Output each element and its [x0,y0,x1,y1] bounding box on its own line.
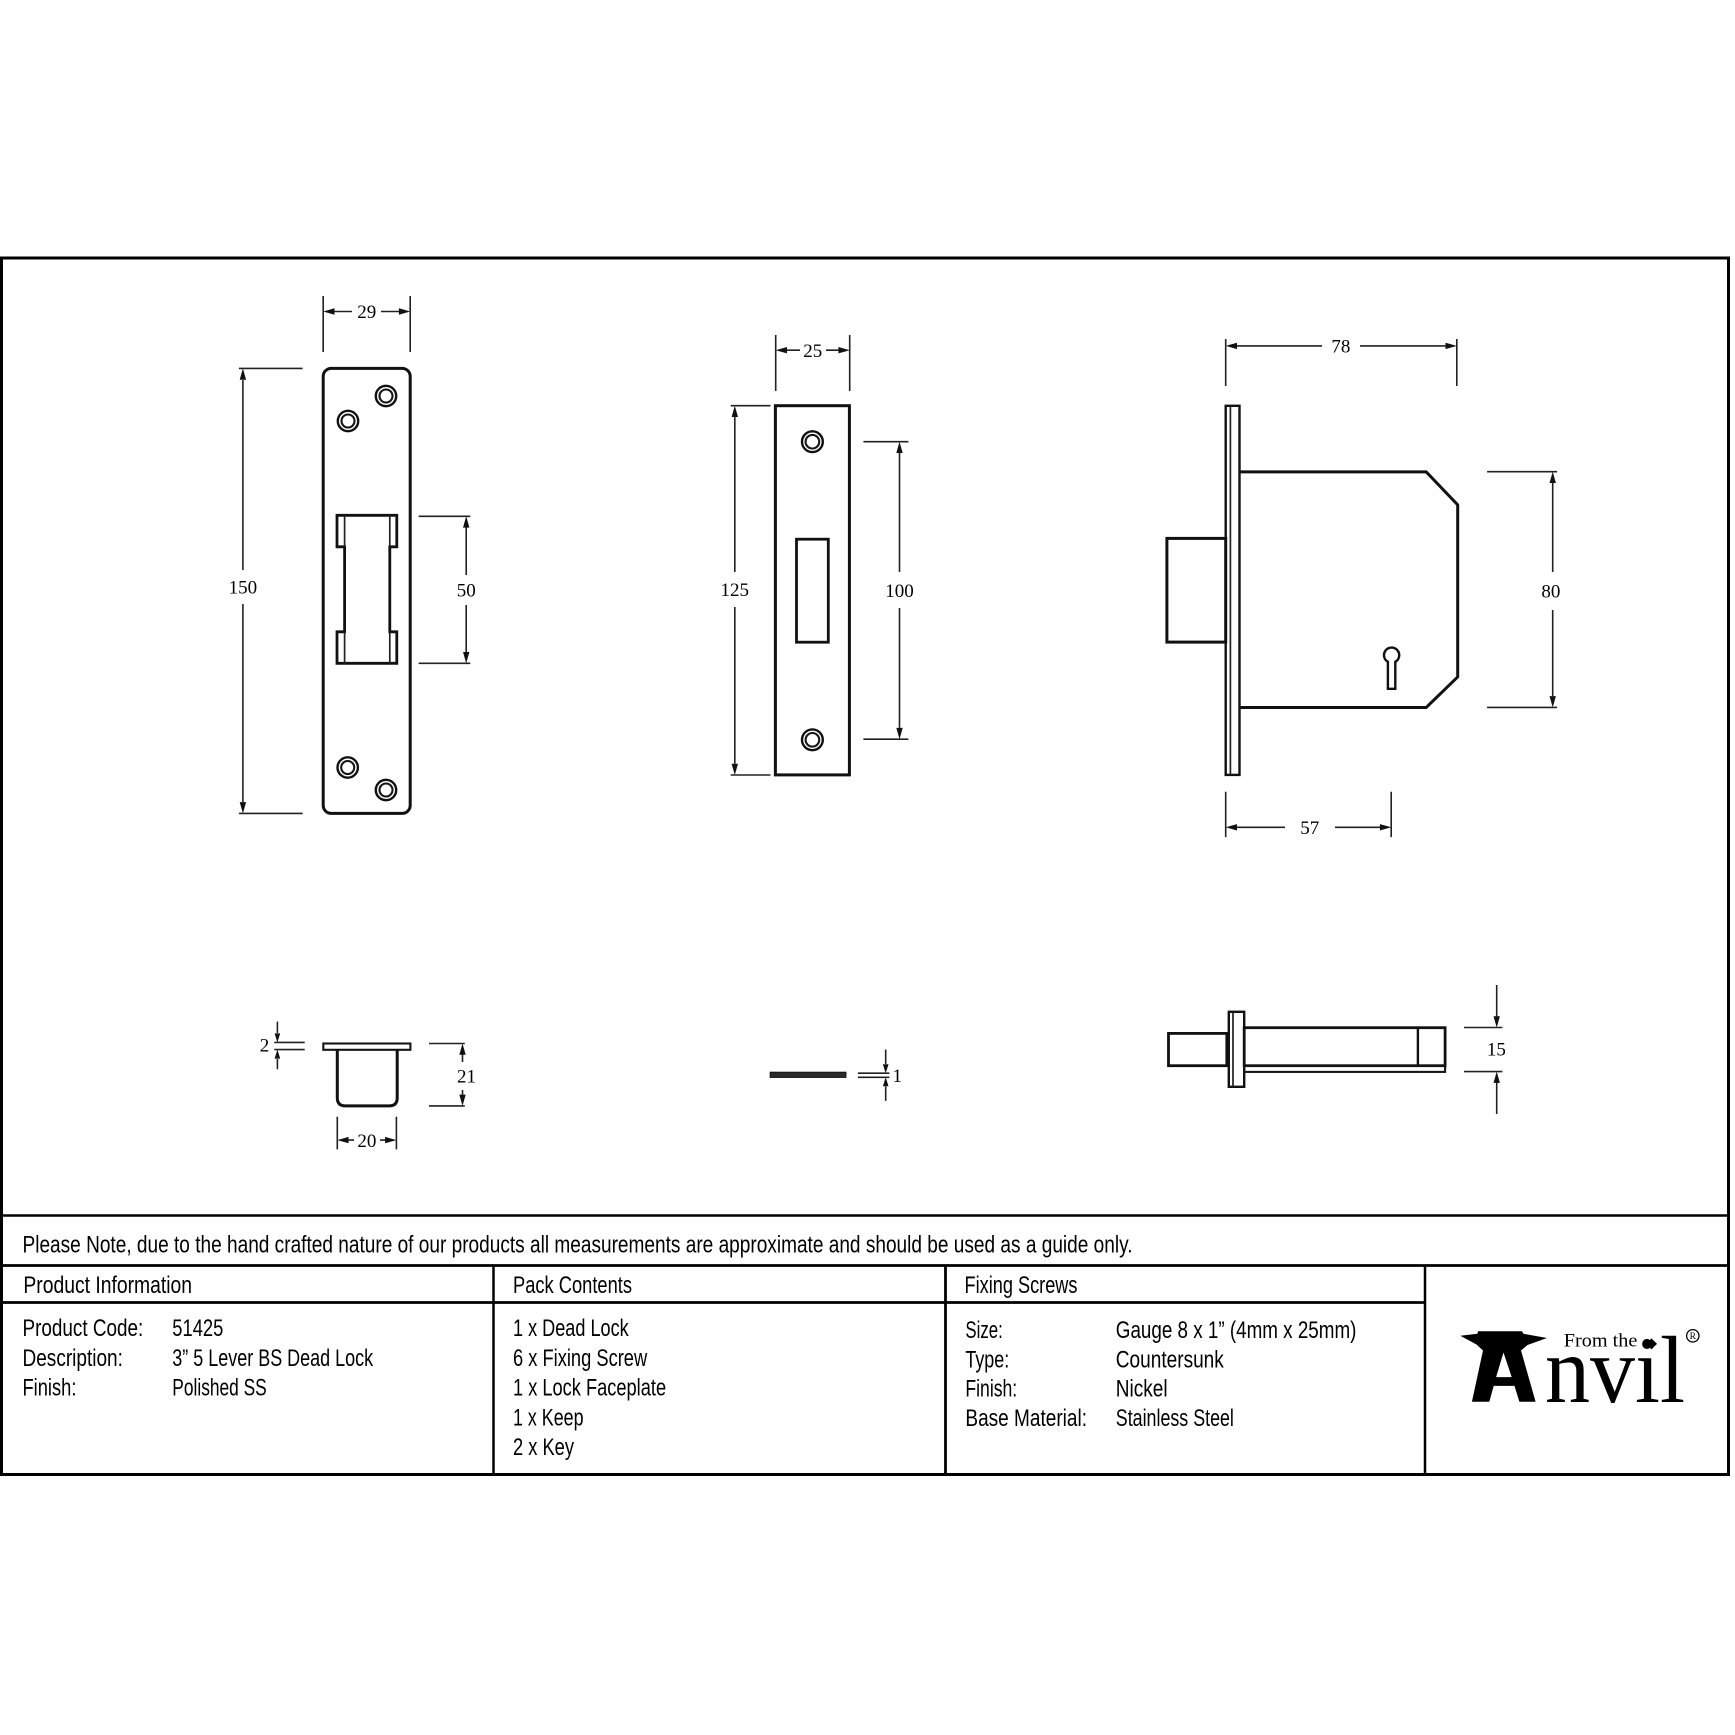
svg-text:Finish:: Finish: [965,1376,1017,1403]
svg-text:6 x Fixing Screw: 6 x Fixing Screw [513,1345,648,1372]
svg-text:Product Code:: Product Code: [23,1315,144,1342]
svg-text:Size:: Size: [965,1317,1002,1344]
svg-text:Base Material:: Base Material: [965,1405,1087,1432]
svg-text:1 x Keep: 1 x Keep [513,1404,584,1431]
svg-text:nvil: nvil [1545,1317,1685,1423]
svg-text:150: 150 [229,577,258,598]
svg-text:1: 1 [893,1066,903,1087]
svg-text:15: 15 [1487,1039,1506,1060]
svg-text:2: 2 [260,1036,270,1057]
svg-text:Countersunk: Countersunk [1116,1346,1225,1373]
svg-text:125: 125 [721,580,750,601]
svg-text:20: 20 [357,1131,376,1152]
svg-text:Stainless Steel: Stainless Steel [1116,1405,1234,1432]
svg-text:51425: 51425 [172,1315,223,1342]
svg-text:Pack Contents: Pack Contents [513,1272,632,1299]
svg-text:2 x Key: 2 x Key [513,1434,574,1461]
svg-text:Description:: Description: [23,1345,123,1372]
svg-text:50: 50 [457,580,476,601]
svg-text:R: R [1690,1332,1697,1342]
svg-text:Fixing Screws: Fixing Screws [965,1272,1078,1299]
svg-text:Gauge 8 x 1” (4mm x 25mm): Gauge 8 x 1” (4mm x 25mm) [1116,1317,1357,1344]
svg-text:3” 5 Lever BS Dead Lock: 3” 5 Lever BS Dead Lock [172,1345,374,1372]
svg-text:1 x Dead Lock: 1 x Dead Lock [513,1315,629,1342]
svg-text:1 x Lock Faceplate: 1 x Lock Faceplate [513,1375,666,1402]
svg-text:Finish:: Finish: [23,1375,77,1402]
svg-text:100: 100 [885,581,914,602]
svg-text:29: 29 [357,302,376,323]
svg-text:78: 78 [1331,337,1350,358]
svg-text:Product Information: Product Information [23,1272,192,1299]
svg-text:Type:: Type: [965,1346,1009,1373]
svg-text:25: 25 [803,341,822,362]
svg-text:80: 80 [1541,581,1560,602]
svg-text:Polished SS: Polished SS [172,1375,266,1402]
svg-text:57: 57 [1300,818,1319,839]
svg-text:21: 21 [457,1066,476,1087]
svg-text:Please Note, due to the hand c: Please Note, due to the hand crafted nat… [23,1231,1133,1258]
svg-text:Nickel: Nickel [1116,1376,1168,1403]
